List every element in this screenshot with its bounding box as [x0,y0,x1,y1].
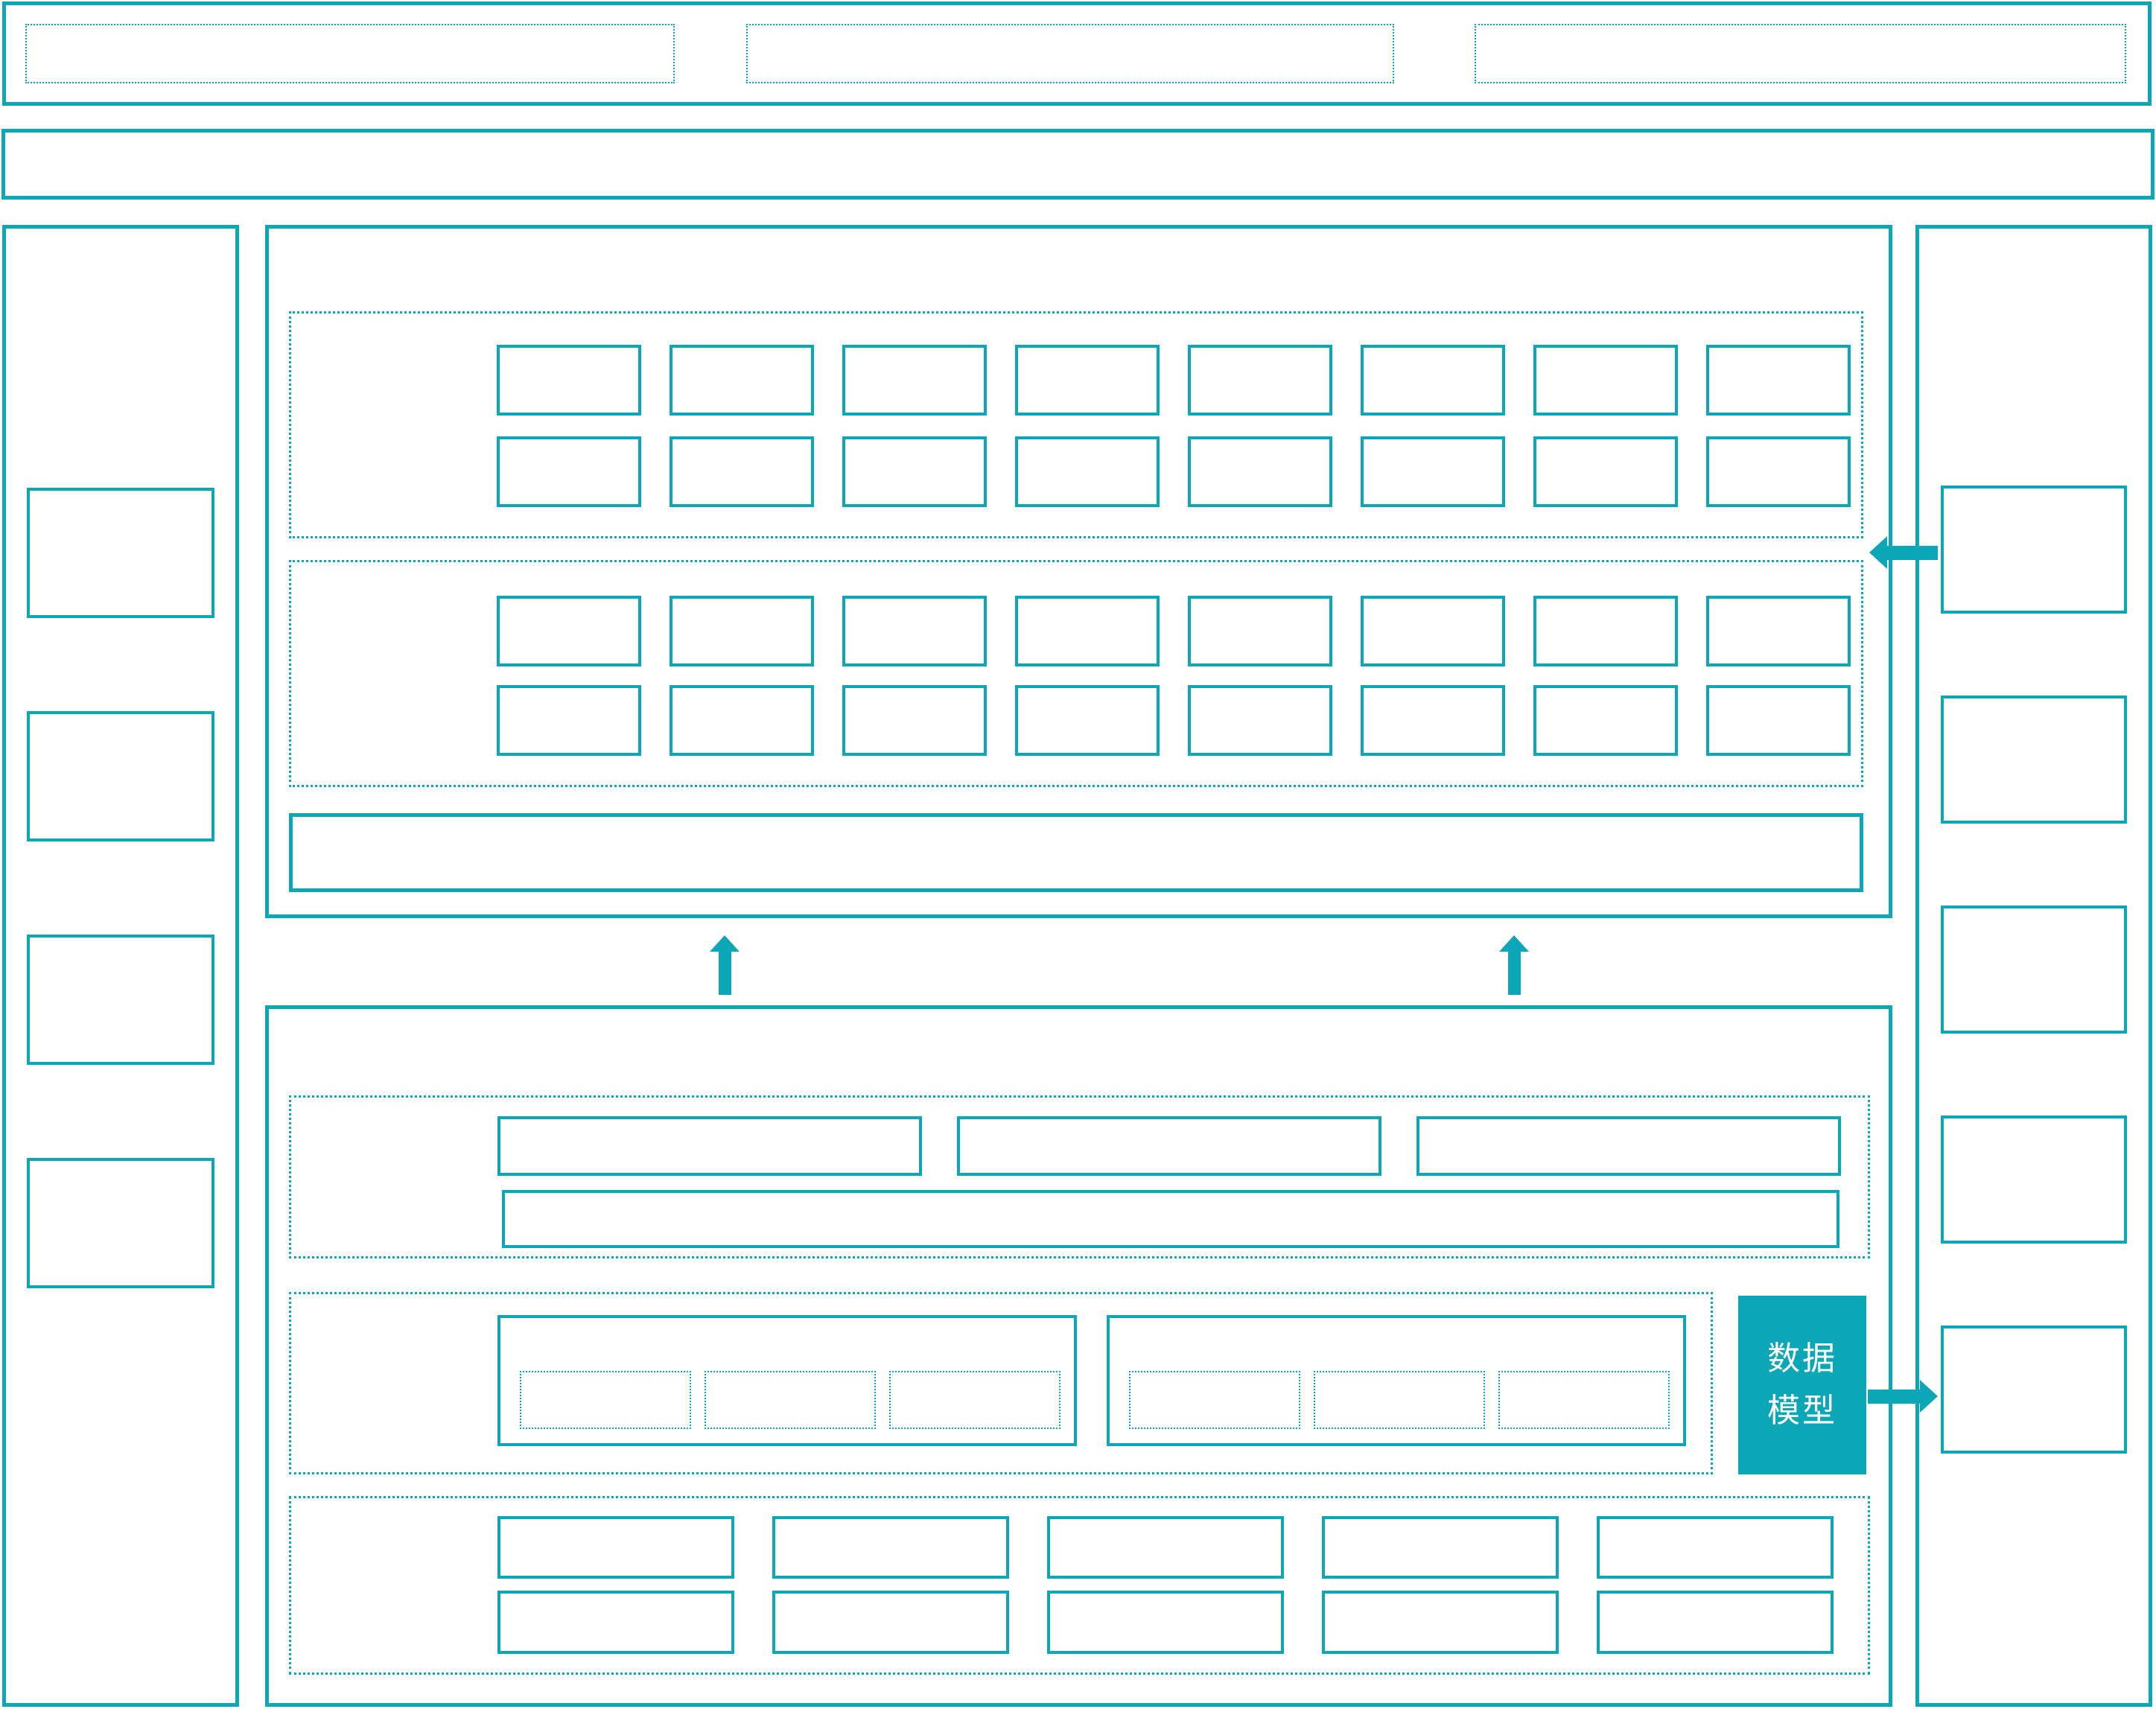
cluster-cell [1129,1371,1300,1429]
cluster-cell [1498,1371,1670,1429]
module-cell [1706,596,1851,666]
upper-panel [265,225,1892,918]
module-cell [1188,345,1332,416]
module-cell [1361,685,1505,756]
module-cell [1015,345,1160,416]
module-cell [497,436,641,507]
header-slot-1 [25,24,675,83]
upper-group-1 [289,311,1863,538]
module-row [497,596,1851,666]
bottom-cell [1322,1591,1559,1654]
cluster-cell [889,1371,1060,1429]
right-sidebar-box [1941,906,2127,1034]
bottom-cell [497,1591,734,1654]
module-cell [842,596,987,666]
service-row [497,1116,1841,1176]
service-wide-box [1416,1116,1841,1176]
module-cell [1533,596,1678,666]
bottom-row [497,1516,1834,1579]
right-sidebar-box [1941,1116,2127,1244]
module-row [497,345,1851,416]
left-sidebar [2,225,239,1707]
module-cell [842,345,987,416]
module-cell [1015,436,1160,507]
bottom-cell [1597,1591,1834,1654]
header-bar [2,1,2152,106]
module-row [497,436,1851,507]
bottom-cell [1047,1516,1284,1579]
module-cell [670,685,814,756]
lower-panel: 数据模型 [265,1005,1892,1707]
upper-wide-bar [289,813,1863,892]
lower-group-b [289,1292,1713,1474]
cluster-cell [1314,1371,1485,1429]
diagram-canvas: { "diagram": { "accent_color": "#0ba7b6"… [0,0,2156,1709]
module-cell [1533,436,1678,507]
lower-group-c [289,1496,1870,1675]
left-arrow-icon [1869,536,1938,569]
bottom-cell [497,1516,734,1579]
header-slot-2 [746,24,1394,83]
module-cell [1188,685,1332,756]
right-arrow-icon [1868,1380,1938,1413]
cluster-box-1 [497,1315,1077,1446]
right-sidebar-box [1941,1325,2127,1454]
cluster-cell [520,1371,691,1429]
left-sidebar-box [27,711,214,841]
left-sidebar-box [27,488,214,618]
module-cell [1015,596,1160,666]
service-full-bar [502,1190,1839,1248]
module-cell [1533,685,1678,756]
module-cell [670,345,814,416]
up-arrow-icon [710,935,740,995]
right-sidebar [1915,225,2152,1707]
service-wide-box [957,1116,1381,1176]
module-cell [1361,345,1505,416]
bottom-cell [1597,1516,1834,1579]
bottom-cell [772,1516,1009,1579]
module-cell [497,685,641,756]
data-model-box: 数据模型 [1738,1296,1866,1474]
bottom-cell [1322,1516,1559,1579]
module-cell [1188,596,1332,666]
module-cell [1015,685,1160,756]
cluster-box-2 [1107,1315,1686,1446]
module-cell [670,596,814,666]
module-cell [1533,345,1678,416]
up-arrow-icon [1499,935,1529,995]
module-cell [1706,345,1851,416]
left-sidebar-box [27,1158,214,1288]
module-cell [1706,685,1851,756]
left-sidebar-box [27,935,214,1065]
module-cell [1188,436,1332,507]
lower-group-a [289,1095,1870,1258]
header-slot-3 [1475,24,2126,83]
bottom-cell [1047,1591,1284,1654]
module-cell [670,436,814,507]
module-cell [842,436,987,507]
cluster-row [520,1371,1060,1429]
right-sidebar-box [1941,696,2127,824]
cluster-cell [705,1371,876,1429]
module-cell [497,596,641,666]
right-sidebar-box [1941,486,2127,614]
module-cell [1706,436,1851,507]
module-cell [842,685,987,756]
bottom-row [497,1591,1834,1654]
bottom-cell [772,1591,1009,1654]
module-row [497,685,1851,756]
data-model-label: 数据模型 [1764,1333,1841,1438]
module-cell [1361,436,1505,507]
cluster-row [1129,1371,1670,1429]
module-cell [1361,596,1505,666]
banner-bar [1,129,2155,200]
upper-group-2 [289,560,1863,787]
module-cell [497,345,641,416]
service-wide-box [497,1116,922,1176]
